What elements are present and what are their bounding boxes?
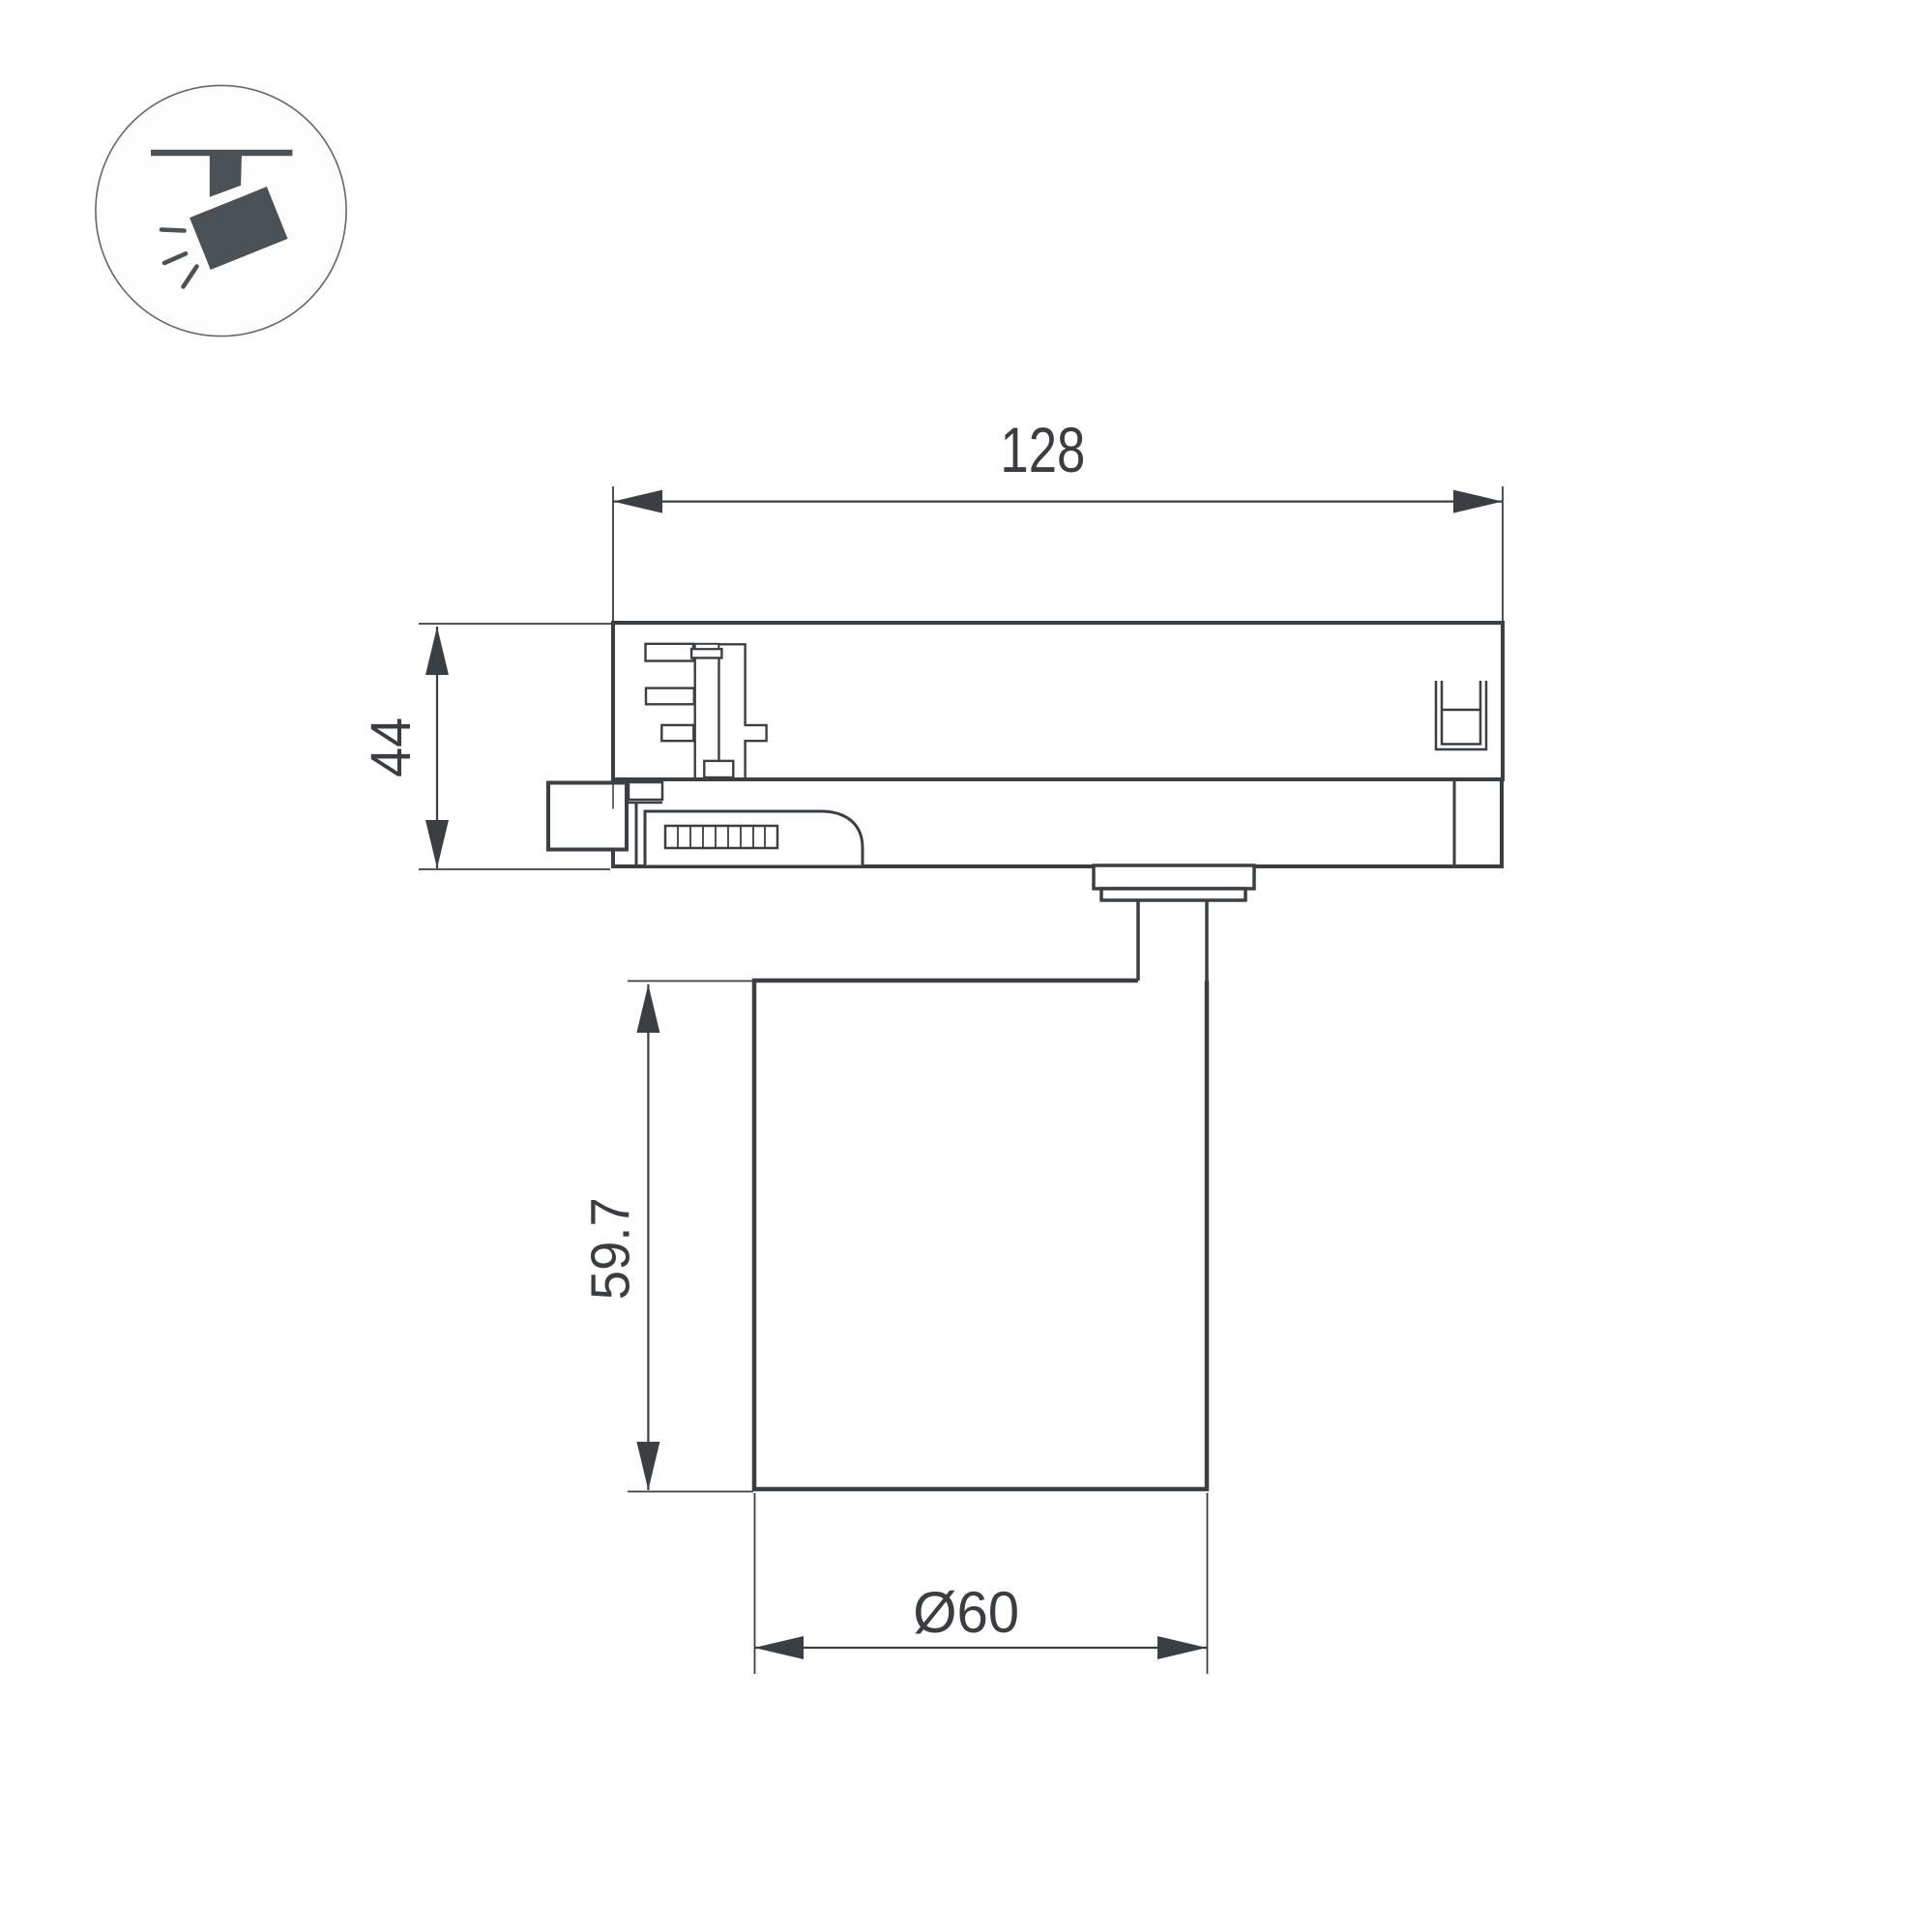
svg-text:Ø60: Ø60 <box>913 1580 1019 1645</box>
svg-text:128: 128 <box>1000 414 1085 485</box>
svg-text:59.7: 59.7 <box>580 1197 642 1300</box>
svg-text:44: 44 <box>360 717 423 777</box>
